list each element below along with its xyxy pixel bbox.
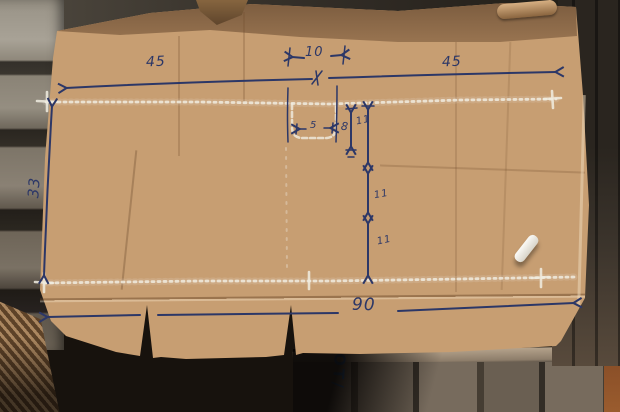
dim-label-33: 33 — [26, 176, 42, 198]
dim-label-45-right: 45 — [442, 55, 462, 70]
dim-45-left-line — [66, 79, 312, 88]
hand-drawn-plan-layer — [0, 0, 620, 412]
dim-45-right-line — [329, 72, 556, 78]
dim-90-line-b — [158, 313, 338, 315]
dim-label-8: 8 — [340, 121, 349, 133]
dim-10-arrow-left — [292, 57, 304, 58]
dim-90-line-a — [47, 315, 140, 317]
dim-10-arrow-right — [331, 55, 342, 56]
chalk-center-guide — [286, 148, 287, 270]
chalk-layout-lines — [35, 91, 575, 292]
dim-label-90: 90 — [352, 297, 376, 314]
dim-label-5: 5 — [310, 121, 317, 131]
dim-label-45-left: 45 — [146, 55, 166, 70]
dim-label-10: 10 — [305, 46, 324, 59]
dim-center-mark — [312, 71, 322, 85]
dim-10-projection-lines — [288, 86, 338, 142]
chalk-cross-marks — [35, 91, 561, 292]
photo-cardboard-plan: OT/ — [0, 0, 620, 412]
dim-90-line-c — [398, 303, 574, 311]
dim-33-line — [44, 106, 52, 276]
